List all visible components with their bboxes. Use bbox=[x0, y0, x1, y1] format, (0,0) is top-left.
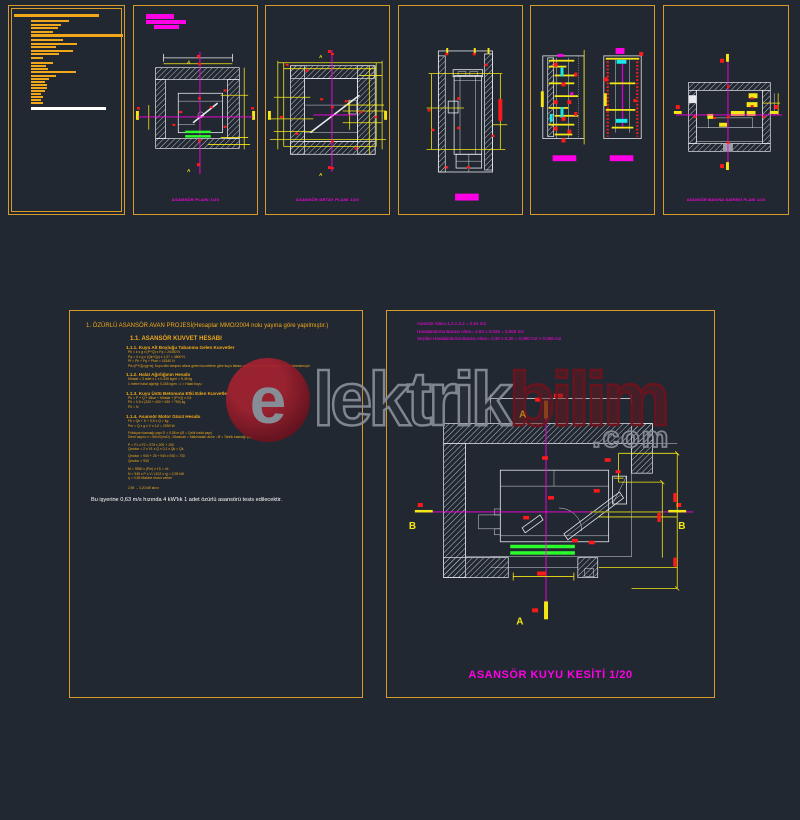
watermark-text-gray: lektrik bbox=[313, 356, 509, 443]
note-text-line bbox=[31, 46, 56, 48]
note-text-line bbox=[31, 62, 53, 64]
note-text-line bbox=[31, 68, 48, 70]
note-text-line bbox=[31, 78, 49, 80]
sheet-title-bar bbox=[455, 194, 479, 201]
note-text-line bbox=[31, 107, 106, 110]
note-text-line bbox=[31, 71, 76, 73]
sheet-plan-detail[interactable]: A A ASANSÖR DETAY PLANI 1/20 bbox=[265, 5, 390, 215]
sheet-plan[interactable]: A A ASANSÖR PLANI 1/20 bbox=[133, 5, 258, 215]
note-text-line bbox=[31, 65, 46, 67]
section-drawing bbox=[399, 6, 522, 214]
note-text-line bbox=[31, 24, 61, 26]
detail-right bbox=[604, 48, 643, 139]
note-text-line bbox=[31, 27, 58, 29]
calc-line: Qmotor = 930 bbox=[128, 459, 354, 464]
sheet-title: ASANSÖR DETAY PLANI 1/20 bbox=[266, 197, 389, 202]
svg-text:A: A bbox=[516, 616, 523, 627]
door-sill bbox=[510, 545, 575, 555]
calc-line: Qmotor = 2 x V1 x Q x 0,1 x Qk = Qk bbox=[128, 447, 354, 452]
watermark-logo-icon: e bbox=[226, 358, 310, 442]
detail-left bbox=[541, 50, 584, 144]
sheet-title: ASANSÖR MAKİNA DAİRESİ PLANI 1/20 bbox=[664, 198, 788, 202]
sheet-section[interactable] bbox=[398, 5, 523, 215]
note-text-line bbox=[31, 84, 47, 86]
ramp-and-door bbox=[522, 476, 626, 540]
note-text-line bbox=[31, 39, 63, 41]
note-text-line bbox=[31, 43, 77, 45]
note-text-line bbox=[31, 53, 59, 55]
note-text-line bbox=[31, 34, 123, 37]
note-text-line bbox=[31, 75, 56, 77]
door-sill bbox=[185, 131, 211, 138]
calc-line: η = 0,55 Makine motor verimi bbox=[128, 476, 354, 481]
section-mark-a-bottom: A bbox=[516, 601, 548, 627]
svg-text:B: B bbox=[409, 521, 416, 532]
svg-text:A: A bbox=[187, 168, 191, 173]
sheet-notes[interactable] bbox=[8, 5, 125, 215]
note-text-line bbox=[31, 81, 45, 83]
sheet-title: ASANSÖR PLANI 1/20 bbox=[134, 197, 257, 202]
cad-canvas: A A ASANSÖR PLANI 1/20 bbox=[0, 0, 800, 820]
watermark-domain: .com bbox=[592, 421, 670, 455]
note-text-line bbox=[31, 102, 43, 104]
note-text-line bbox=[31, 96, 43, 98]
sheet-machine-plan[interactable]: ASANSÖR MAKİNA DAİRESİ PLANI 1/20 bbox=[663, 5, 789, 215]
svg-text:B: B bbox=[678, 521, 685, 532]
note-text-line bbox=[31, 20, 69, 22]
note-text-line bbox=[31, 99, 41, 101]
note-text-line bbox=[31, 57, 43, 59]
watermark: e lektrik bilim .com bbox=[226, 356, 666, 443]
calc-line: 2,95 → 3,20 kW alınır bbox=[128, 486, 354, 490]
calc-line: 1. ÖZÜRLÜ ASANSÖR AVAN PROJESİ(Hesaplar … bbox=[86, 323, 354, 329]
drawing-title: ASANSÖR KUYU KESİTİ 1/20 bbox=[387, 669, 714, 681]
plan-detail-drawing: A A bbox=[266, 6, 389, 214]
note-text-line bbox=[31, 87, 47, 89]
sheet-details[interactable] bbox=[530, 5, 655, 215]
calc-line: 1.1. ASANSÖR KUVVET HESABI bbox=[130, 336, 354, 342]
svg-text:A: A bbox=[319, 172, 323, 177]
machine-plan-drawing bbox=[664, 6, 788, 214]
plan-drawing: A A bbox=[134, 6, 257, 214]
notes-text-block bbox=[9, 6, 124, 214]
section-mark-b-left: B bbox=[409, 503, 433, 532]
detail-drawings bbox=[531, 6, 654, 214]
note-text-line bbox=[31, 93, 41, 95]
note-text-line bbox=[14, 14, 99, 17]
calc-line: Bu işyerine 0,63 m/s hızında 4 kW'lık 1 … bbox=[91, 497, 354, 503]
note-text-line bbox=[31, 90, 45, 92]
note-text-line bbox=[31, 50, 73, 52]
note-text-line bbox=[31, 31, 53, 33]
cabin bbox=[478, 470, 608, 542]
equipment-labels bbox=[707, 93, 757, 126]
room-outline bbox=[689, 90, 763, 151]
svg-text:A: A bbox=[319, 54, 323, 59]
sheet-title-bars bbox=[553, 155, 634, 161]
